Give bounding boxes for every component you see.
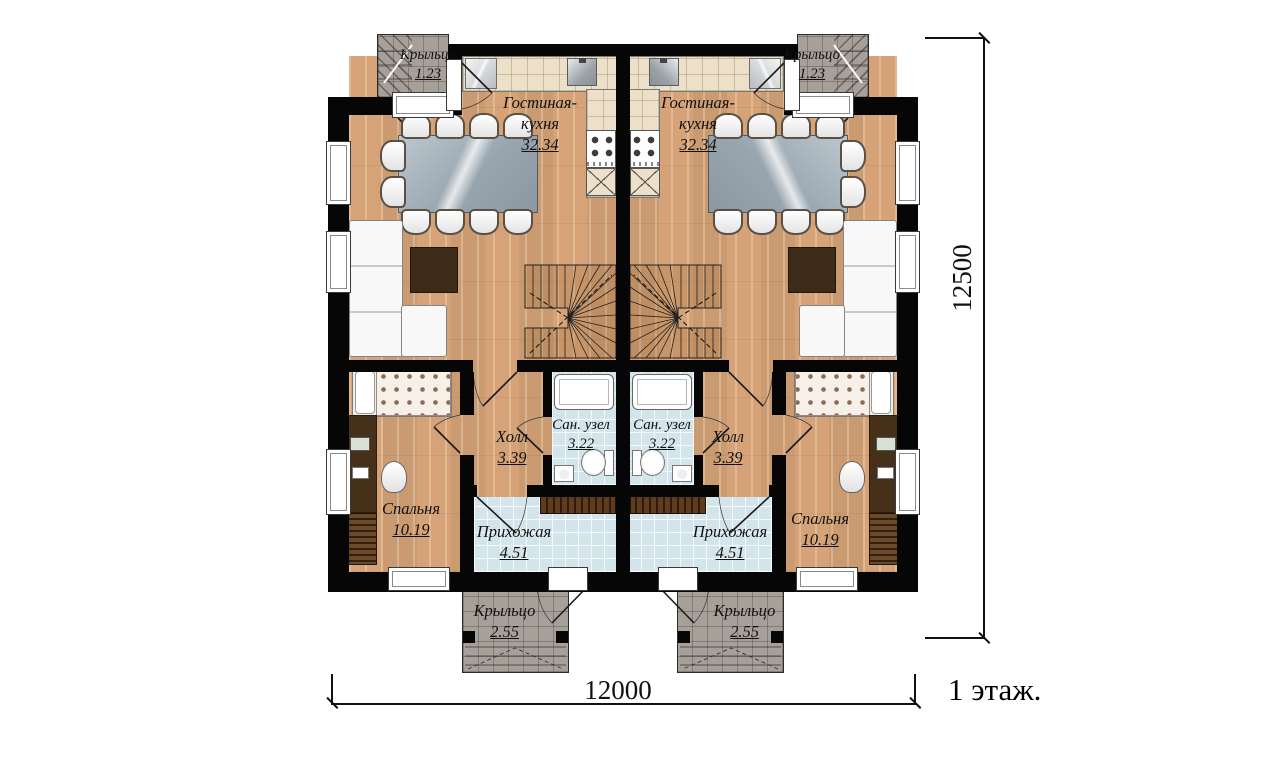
dining-chair [503,209,533,235]
wall-hall-bath [694,372,703,417]
wall-hall-bath [543,372,552,417]
bed-pillow [871,371,891,414]
desk-paper [877,467,894,479]
wall-partition [517,360,616,372]
dining-chair [840,176,866,208]
dining-chair [781,209,811,235]
window [326,449,351,515]
dining-chair [435,209,465,235]
dining-chair [713,113,743,139]
dining-chair [469,209,499,235]
dining-table [398,135,538,213]
staircase [525,265,616,358]
porch-entry-door [784,59,800,111]
wall-entry-top [460,485,477,497]
window [388,567,450,591]
sofa-section [401,305,447,357]
desk-chair [839,461,865,493]
coffee-table [788,247,836,293]
wall-partition [773,360,897,372]
unit-left [328,35,623,680]
desk-laptop [876,437,896,451]
sofa-section [349,220,403,357]
wall-bedroom-hall [460,455,474,572]
wall-kitchen-top [448,44,623,56]
dining-chair [840,140,866,172]
wall-bedroom-hall [772,372,786,415]
dining-chair [747,209,777,235]
unit-right [623,35,918,680]
entry-exterior-door [658,567,698,591]
window-door-top [392,92,454,118]
dining-chair [815,209,845,235]
bath-sink [672,465,692,482]
entry-exterior-door [548,567,588,591]
wall-bedroom-hall [460,372,474,415]
desk-chair [381,461,407,493]
toilet-bowl [640,449,665,476]
bathtub [554,374,614,410]
window [895,231,920,293]
window [326,141,351,205]
bed-blanket [795,369,870,416]
dining-chair [469,113,499,139]
dim-width-label: 12000 [558,675,678,706]
floor-title: 1 этаж. [948,672,1108,708]
wall-partition [630,360,729,372]
dining-table [708,135,848,213]
bed-pillow [355,371,375,414]
toilet-bowl [581,449,606,476]
coffee-table [410,247,458,293]
dining-chair [380,140,406,172]
dim-ext-line [925,37,985,39]
desk-paper [352,467,369,479]
window-door-top [792,92,854,118]
bathtub [632,374,692,410]
dim-line-right [983,38,985,638]
wall-kitchen-top [623,44,798,56]
dining-chair [747,113,777,139]
window [895,141,920,205]
dining-chair [401,209,431,235]
dining-chair [503,113,533,139]
floor-plan-canvas: Крыльцо 1.23 Крыльцо 1.23 Гостиная-кухня… [0,0,1280,768]
wall-central [616,44,623,592]
wall-bedroom-hall [772,455,786,572]
window [326,231,351,293]
wall-entry-top [527,485,616,497]
wall-central [623,44,630,592]
bed-blanket [376,369,451,416]
porch-entry-door [446,59,462,111]
window [796,567,858,591]
dining-chair [380,176,406,208]
staircase [630,265,721,358]
sofa-section [799,305,845,357]
dim-ext-line [925,637,985,639]
dim-height-label: 12500 [947,233,977,323]
dining-chair [713,209,743,235]
wall-partition [349,360,473,372]
desk-laptop [350,437,370,451]
sofa-section [843,220,897,357]
bath-sink [554,465,574,482]
window [895,449,920,515]
wall-entry-top [630,485,719,497]
wardrobe [345,513,377,565]
wall-entry-top [769,485,786,497]
